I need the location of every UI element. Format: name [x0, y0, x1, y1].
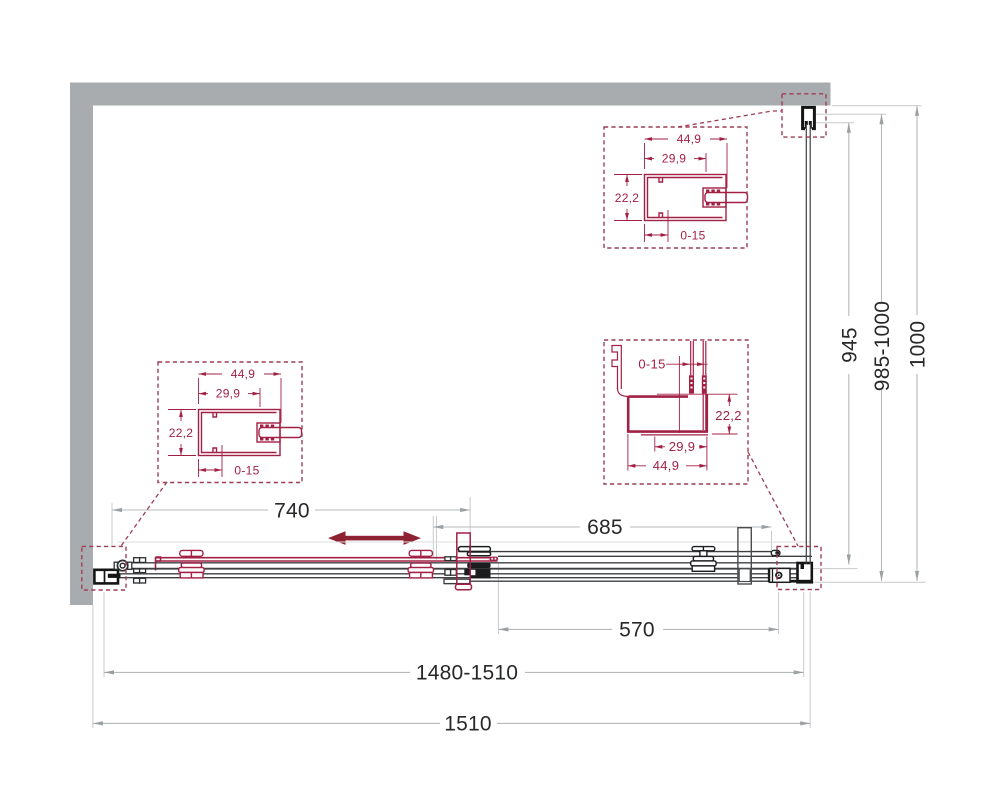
- svg-text:685: 685: [587, 516, 623, 539]
- svg-text:0-15: 0-15: [234, 463, 259, 477]
- svg-text:1480-1510: 1480-1510: [416, 662, 518, 685]
- svg-text:570: 570: [619, 619, 655, 642]
- svg-text:945: 945: [838, 327, 861, 363]
- svg-text:1510: 1510: [444, 713, 492, 736]
- svg-text:29,9: 29,9: [216, 387, 241, 401]
- svg-text:22,2: 22,2: [715, 408, 742, 423]
- svg-text:740: 740: [274, 500, 310, 523]
- svg-text:22,2: 22,2: [169, 426, 194, 440]
- svg-text:29,9: 29,9: [669, 439, 696, 454]
- svg-text:985-1000: 985-1000: [871, 301, 894, 391]
- svg-text:1000: 1000: [907, 321, 930, 369]
- svg-text:0-15: 0-15: [638, 356, 665, 371]
- svg-text:44,9: 44,9: [653, 458, 680, 473]
- svg-text:44,9: 44,9: [231, 367, 256, 381]
